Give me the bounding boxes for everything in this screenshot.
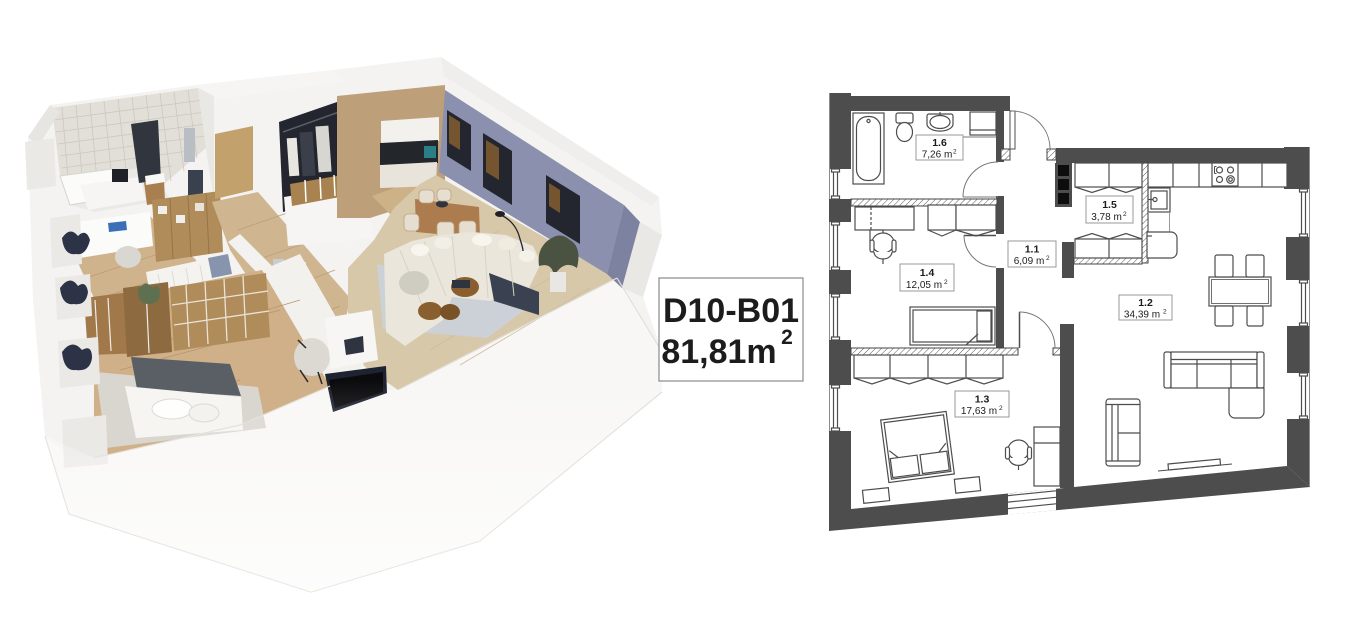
svg-text:2: 2 [781, 326, 793, 349]
svg-text:34,39 m: 34,39 m [1124, 310, 1160, 321]
svg-text:12,05 m: 12,05 m [906, 280, 942, 291]
svg-text:D10-B01: D10-B01 [663, 292, 799, 330]
svg-text:1.1: 1.1 [1025, 244, 1040, 256]
svg-text:1.3: 1.3 [975, 394, 990, 406]
svg-text:2: 2 [1046, 255, 1050, 262]
svg-text:1.5: 1.5 [1102, 199, 1117, 211]
svg-text:2: 2 [1163, 309, 1167, 316]
svg-text:1.4: 1.4 [920, 267, 935, 279]
svg-text:2: 2 [999, 405, 1003, 412]
svg-text:2: 2 [1123, 211, 1127, 218]
svg-text:6,09 m: 6,09 m [1014, 256, 1045, 267]
svg-text:7,26 m: 7,26 m [922, 150, 953, 161]
svg-text:81,81m: 81,81m [661, 333, 776, 371]
svg-text:1.6: 1.6 [932, 137, 947, 149]
svg-text:3,78 m: 3,78 m [1091, 212, 1122, 223]
svg-text:17,63 m: 17,63 m [961, 406, 997, 417]
svg-text:2: 2 [944, 279, 948, 286]
svg-text:2: 2 [953, 149, 957, 156]
svg-text:1.2: 1.2 [1138, 297, 1153, 309]
